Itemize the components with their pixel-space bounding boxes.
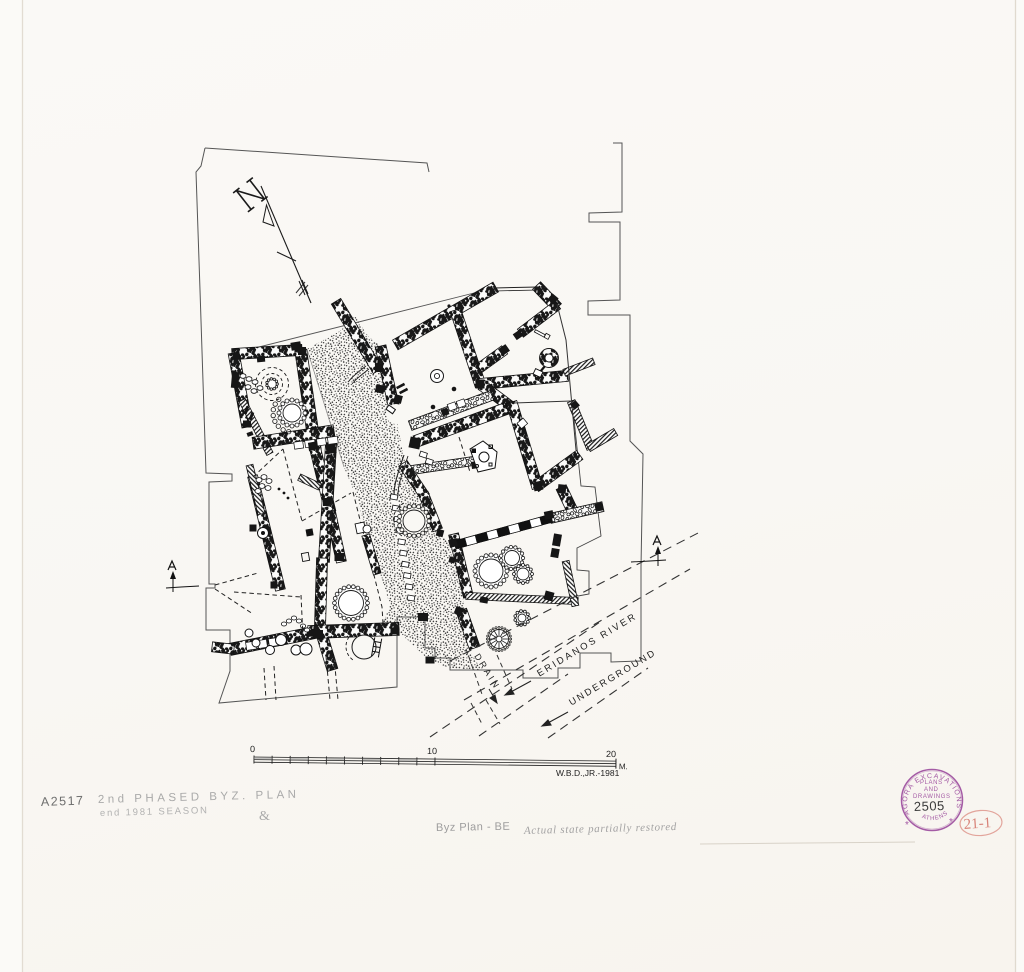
- svg-text:2505: 2505: [914, 798, 945, 814]
- svg-text:PLANS: PLANS: [920, 780, 943, 786]
- svg-text:10: 10: [427, 746, 437, 756]
- svg-text:&: &: [259, 809, 270, 824]
- svg-text:AND: AND: [924, 787, 939, 793]
- svg-text:M.: M.: [619, 762, 628, 771]
- svg-text:21-1: 21-1: [963, 815, 992, 833]
- svg-text:W.B.D.,JR.-1981: W.B.D.,JR.-1981: [556, 768, 620, 778]
- svg-text:A2517: A2517: [41, 793, 85, 809]
- svg-text:end 1981 SEASON: end 1981 SEASON: [100, 805, 209, 819]
- svg-text:Actual state partially restore: Actual state partially restored: [523, 821, 677, 837]
- svg-text:2nd PHASED BYZ. PLAN: 2nd PHASED BYZ. PLAN: [98, 789, 300, 806]
- svg-text:*: *: [905, 820, 909, 831]
- svg-text:UNDERGROUND: UNDERGROUND: [567, 647, 659, 708]
- svg-text:0: 0: [250, 744, 255, 754]
- svg-text:*: *: [949, 817, 953, 828]
- svg-text:20: 20: [606, 749, 616, 759]
- svg-text:Byz Plan - BE: Byz Plan - BE: [436, 821, 511, 834]
